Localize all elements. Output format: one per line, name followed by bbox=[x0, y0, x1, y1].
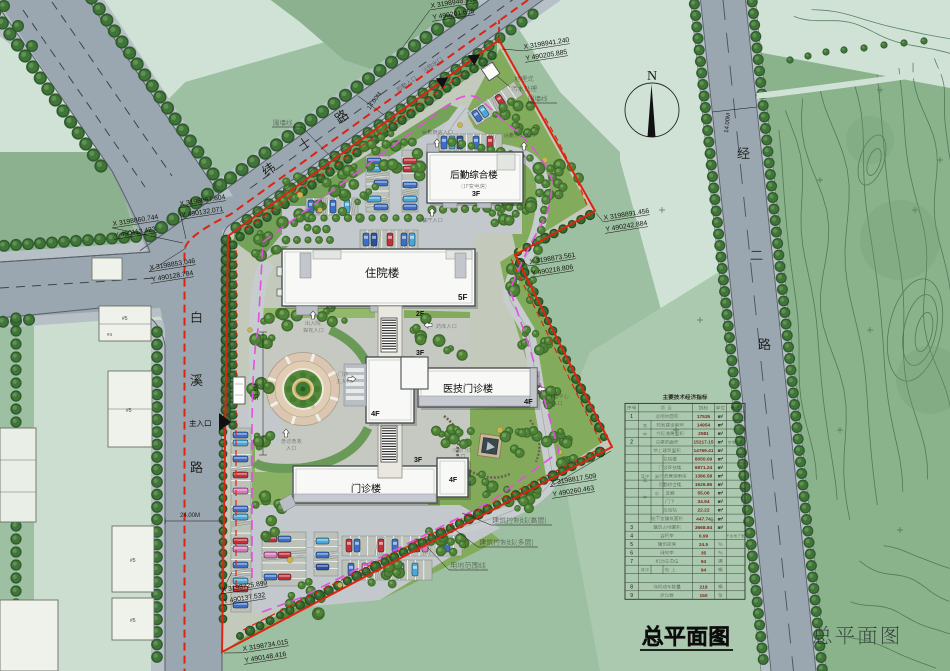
svg-text:51.8M: 51.8M bbox=[254, 383, 260, 400]
svg-text:4: 4 bbox=[630, 533, 633, 539]
svg-text:24.5: 24.5 bbox=[699, 542, 709, 548]
svg-text:2F: 2F bbox=[416, 311, 425, 318]
svg-text:m²: m² bbox=[718, 516, 724, 521]
svg-text:3: 3 bbox=[630, 525, 633, 531]
svg-text:m²: m² bbox=[718, 499, 724, 504]
svg-text:3F: 3F bbox=[472, 191, 481, 198]
svg-text:m²: m² bbox=[718, 491, 724, 496]
svg-text:#5: #5 bbox=[122, 316, 128, 322]
svg-text:55.06: 55.06 bbox=[697, 491, 709, 497]
svg-text:14769.41: 14769.41 bbox=[693, 448, 713, 454]
svg-text:7: 7 bbox=[630, 559, 633, 565]
svg-text:m²: m² bbox=[718, 525, 724, 530]
svg-text:#4: #4 bbox=[107, 332, 113, 337]
svg-text:m²: m² bbox=[718, 440, 724, 445]
svg-text:4F: 4F bbox=[371, 409, 380, 418]
svg-text:6: 6 bbox=[630, 550, 633, 556]
svg-text:1626.86: 1626.86 bbox=[695, 482, 713, 488]
svg-text:m²: m² bbox=[718, 508, 724, 513]
svg-text:1386.58: 1386.58 bbox=[695, 474, 713, 480]
svg-text:m²: m² bbox=[718, 465, 724, 470]
svg-text:#5: #5 bbox=[126, 408, 132, 414]
svg-text:94: 94 bbox=[701, 559, 707, 565]
svg-text:0.99: 0.99 bbox=[699, 533, 709, 539]
svg-text:8050.09: 8050.09 bbox=[695, 457, 713, 463]
svg-text:24.00M: 24.00M bbox=[180, 513, 200, 519]
svg-text:1: 1 bbox=[630, 414, 633, 420]
svg-text:447.74: 447.74 bbox=[696, 516, 711, 522]
svg-text:15217.15: 15217.15 bbox=[693, 440, 713, 446]
svg-text:9: 9 bbox=[630, 593, 633, 599]
svg-text:2581: 2581 bbox=[698, 431, 709, 437]
svg-text:5: 5 bbox=[630, 542, 633, 548]
svg-text:35: 35 bbox=[701, 550, 707, 556]
svg-text:14954: 14954 bbox=[697, 423, 711, 429]
svg-text:6971.24: 6971.24 bbox=[695, 465, 713, 471]
svg-text:m²: m² bbox=[718, 423, 724, 428]
svg-text:8: 8 bbox=[630, 584, 633, 590]
svg-text:3F: 3F bbox=[414, 457, 423, 464]
svg-text:m²: m² bbox=[718, 431, 724, 436]
svg-text:N: N bbox=[647, 69, 657, 84]
svg-text:94: 94 bbox=[701, 567, 707, 573]
svg-text:m²: m² bbox=[718, 448, 724, 453]
svg-text:4F: 4F bbox=[449, 477, 458, 484]
svg-text:218: 218 bbox=[699, 584, 707, 590]
svg-text:#5: #5 bbox=[130, 618, 136, 624]
svg-text:3668.84: 3668.84 bbox=[695, 525, 713, 531]
svg-text:2: 2 bbox=[630, 440, 633, 446]
svg-text:5F: 5F bbox=[458, 293, 467, 302]
svg-text:m²: m² bbox=[718, 414, 724, 419]
svg-text:3F: 3F bbox=[416, 350, 425, 357]
svg-text:m²: m² bbox=[718, 457, 724, 462]
svg-text:m²: m² bbox=[718, 482, 724, 487]
svg-text:m²: m² bbox=[718, 474, 724, 479]
svg-text:34.94: 34.94 bbox=[697, 499, 709, 505]
svg-text:150: 150 bbox=[699, 593, 707, 599]
svg-text:17535: 17535 bbox=[697, 414, 711, 420]
svg-text:#5: #5 bbox=[130, 558, 136, 564]
svg-text:22.22: 22.22 bbox=[697, 508, 709, 514]
svg-text:4F: 4F bbox=[524, 397, 533, 406]
